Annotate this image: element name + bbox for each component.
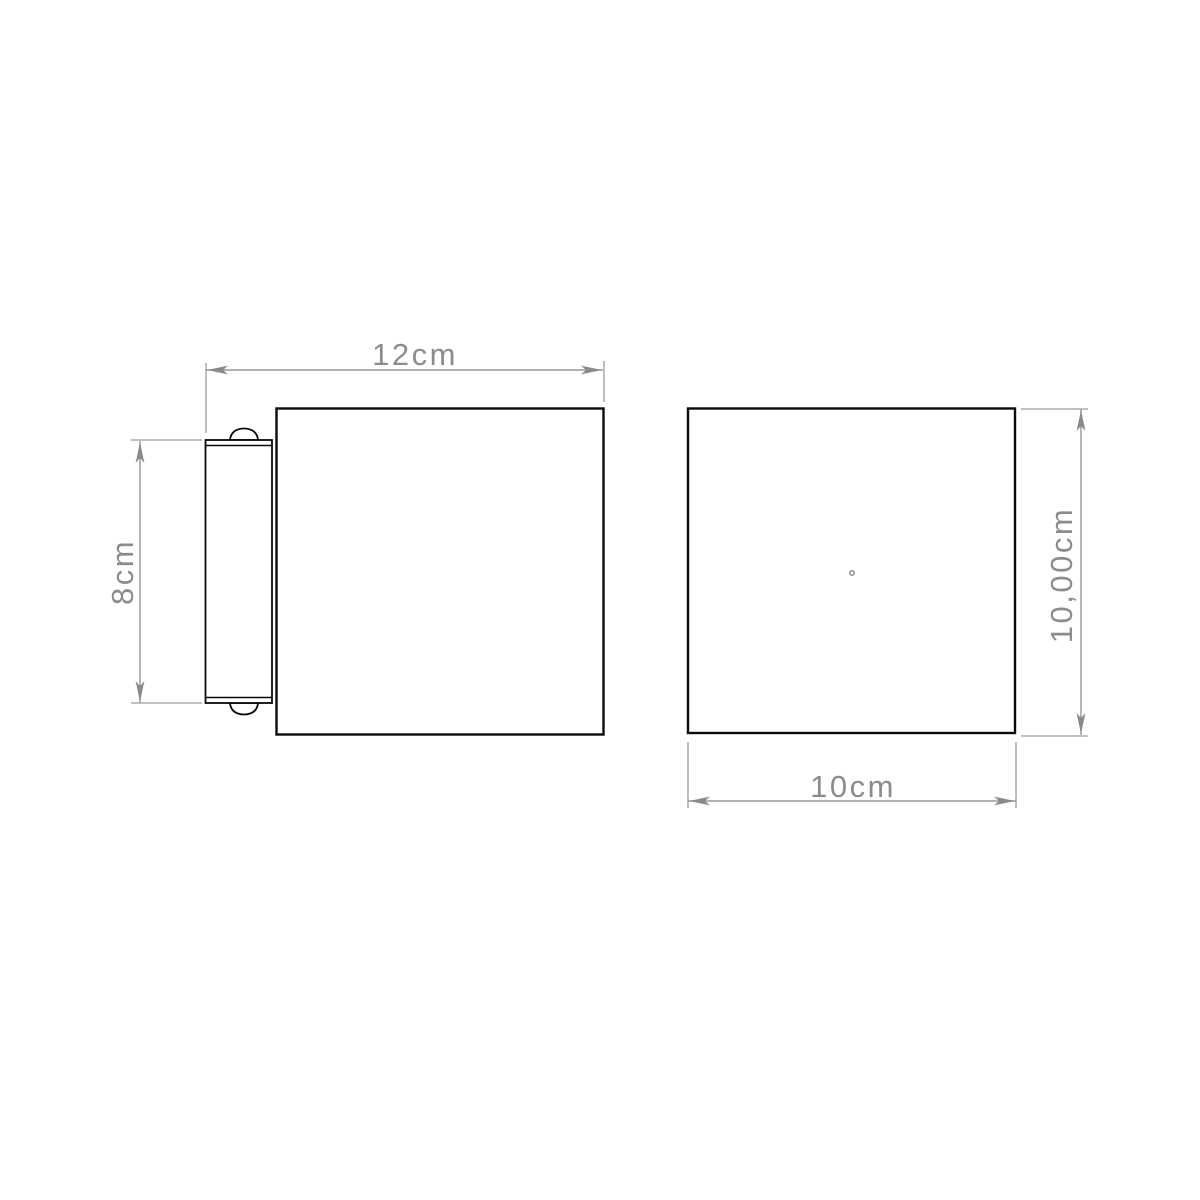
- side-view-body-outline: [277, 409, 604, 735]
- technical-drawing-page: 12cm 8cm 10,00cm: [0, 0, 1200, 1200]
- technical-drawing-canvas: 12cm 8cm 10,00cm: [0, 0, 1200, 1200]
- mounting-screw-bottom-icon: [230, 703, 258, 715]
- dimension-label-front-height: 10,00cm: [1044, 507, 1079, 643]
- dimension-front-height: 10,00cm: [1021, 409, 1088, 736]
- dimension-label-front-width: 10cm: [810, 769, 896, 804]
- side-view: [206, 409, 604, 735]
- dimension-label-overall-depth: 12cm: [372, 337, 458, 372]
- front-view: [688, 409, 1015, 734]
- dimension-front-width: 10cm: [688, 742, 1016, 808]
- mounting-screw-top-icon: [230, 429, 258, 441]
- dimension-label-bracket-height: 8cm: [105, 539, 140, 605]
- mounting-bracket: [206, 440, 273, 703]
- dimension-bracket-height: 8cm: [105, 440, 202, 703]
